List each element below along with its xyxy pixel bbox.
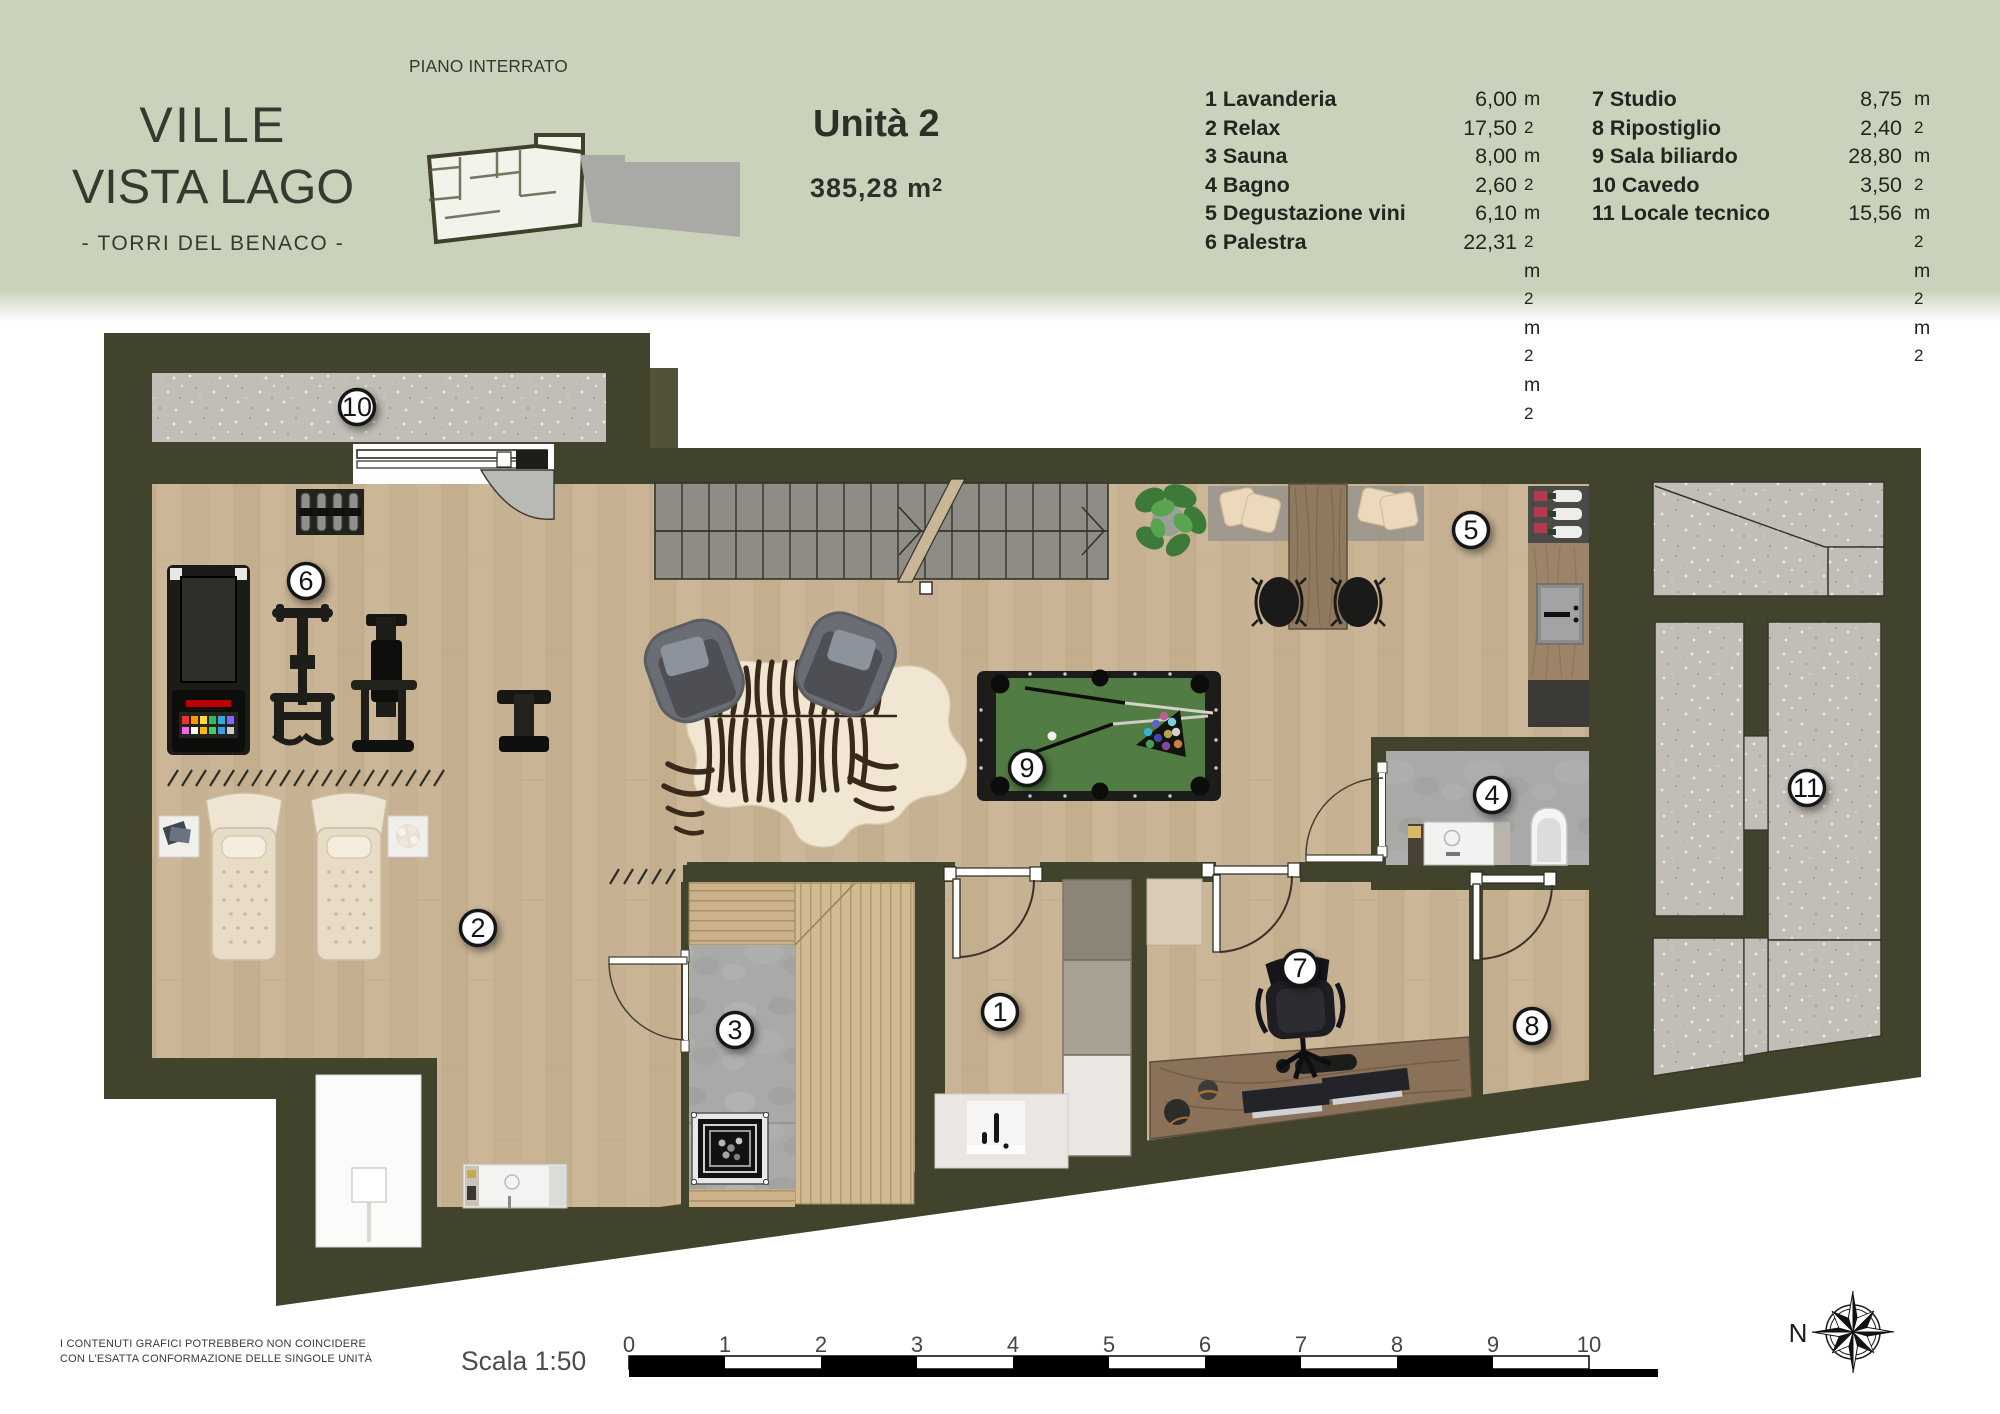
svg-text:1: 1 — [992, 997, 1007, 1027]
svg-text:10: 10 — [1577, 1332, 1601, 1357]
svg-text:4: 4 — [1007, 1332, 1019, 1357]
svg-text:N: N — [1789, 1318, 1808, 1348]
svg-text:2: 2 — [815, 1332, 827, 1357]
svg-text:0: 0 — [623, 1332, 635, 1357]
svg-text:9: 9 — [1019, 753, 1034, 783]
svg-text:8: 8 — [1524, 1011, 1539, 1041]
svg-text:8: 8 — [1391, 1332, 1403, 1357]
svg-text:6: 6 — [1199, 1332, 1211, 1357]
svg-text:3: 3 — [727, 1015, 742, 1045]
svg-text:7: 7 — [1295, 1332, 1307, 1357]
svg-text:11: 11 — [1793, 773, 1821, 803]
svg-text:3: 3 — [911, 1332, 923, 1357]
svg-text:7: 7 — [1292, 953, 1307, 983]
svg-text:1: 1 — [719, 1332, 731, 1357]
svg-text:10: 10 — [342, 392, 372, 422]
svg-text:5: 5 — [1463, 515, 1478, 545]
svg-text:5: 5 — [1103, 1332, 1115, 1357]
svg-text:6: 6 — [298, 566, 313, 596]
svg-text:9: 9 — [1487, 1332, 1499, 1357]
svg-text:4: 4 — [1484, 780, 1499, 810]
svg-text:2: 2 — [470, 913, 485, 943]
